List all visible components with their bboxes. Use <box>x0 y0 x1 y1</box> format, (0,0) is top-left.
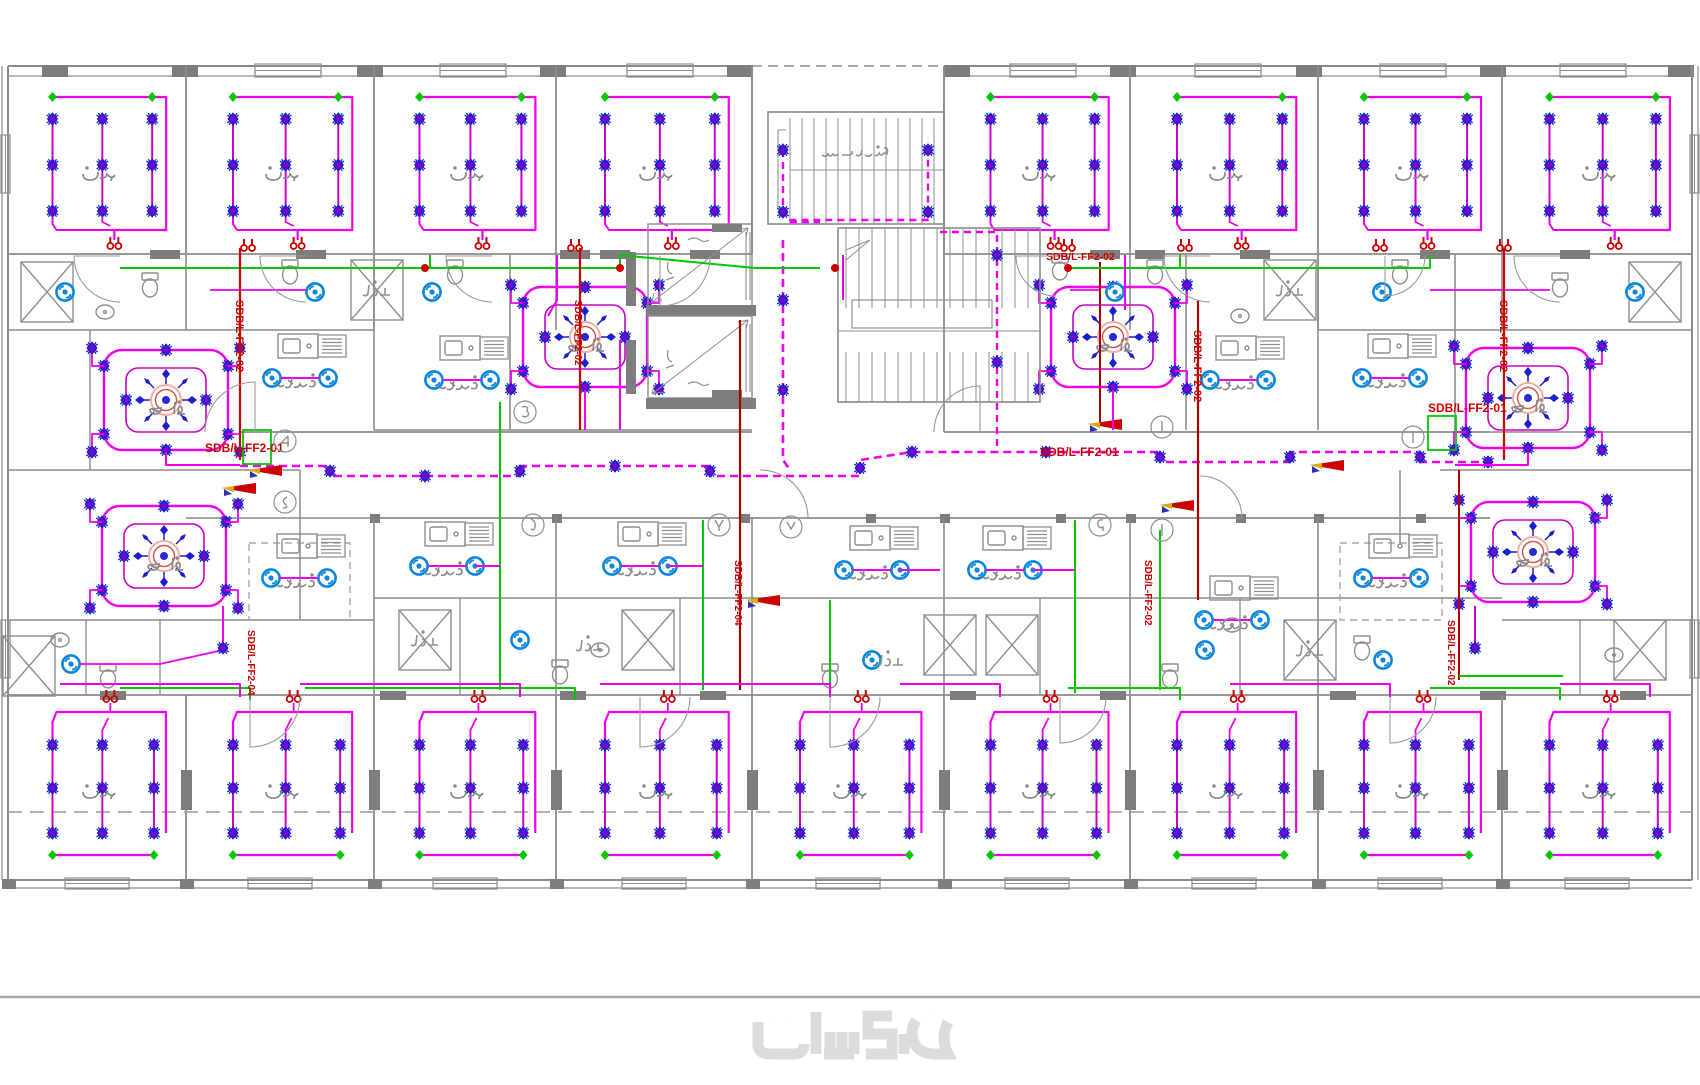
svg-text:SDB/L-FF2-02: SDB/L-FF2-02 <box>1497 300 1509 372</box>
svg-text:SDB/L-FF2-01: SDB/L-FF2-01 <box>1428 401 1507 415</box>
svg-text:SDB/L-FF2-01: SDB/L-FF2-01 <box>1040 445 1119 459</box>
svg-text:SDB/L-FF2-02: SDB/L-FF2-02 <box>1142 560 1153 626</box>
svg-text:SDB/L-FF2-02: SDB/L-FF2-02 <box>1046 251 1115 263</box>
svg-text:SDB/L-FF2-02: SDB/L-FF2-02 <box>572 300 583 366</box>
svg-text:SDB/L-FF2-02: SDB/L-FF2-02 <box>1191 330 1203 402</box>
svg-text:SDB/L-FF2-01: SDB/L-FF2-01 <box>205 441 284 455</box>
svg-text:SDB/L-FF2-02: SDB/L-FF2-02 <box>233 300 245 372</box>
svg-text:SDB/L-FF2-04: SDB/L-FF2-04 <box>245 630 256 696</box>
svg-text:SDB/L-FF2-04: SDB/L-FF2-04 <box>732 560 743 626</box>
svg-text:SDB/L-FF2-02: SDB/L-FF2-02 <box>1445 620 1456 686</box>
